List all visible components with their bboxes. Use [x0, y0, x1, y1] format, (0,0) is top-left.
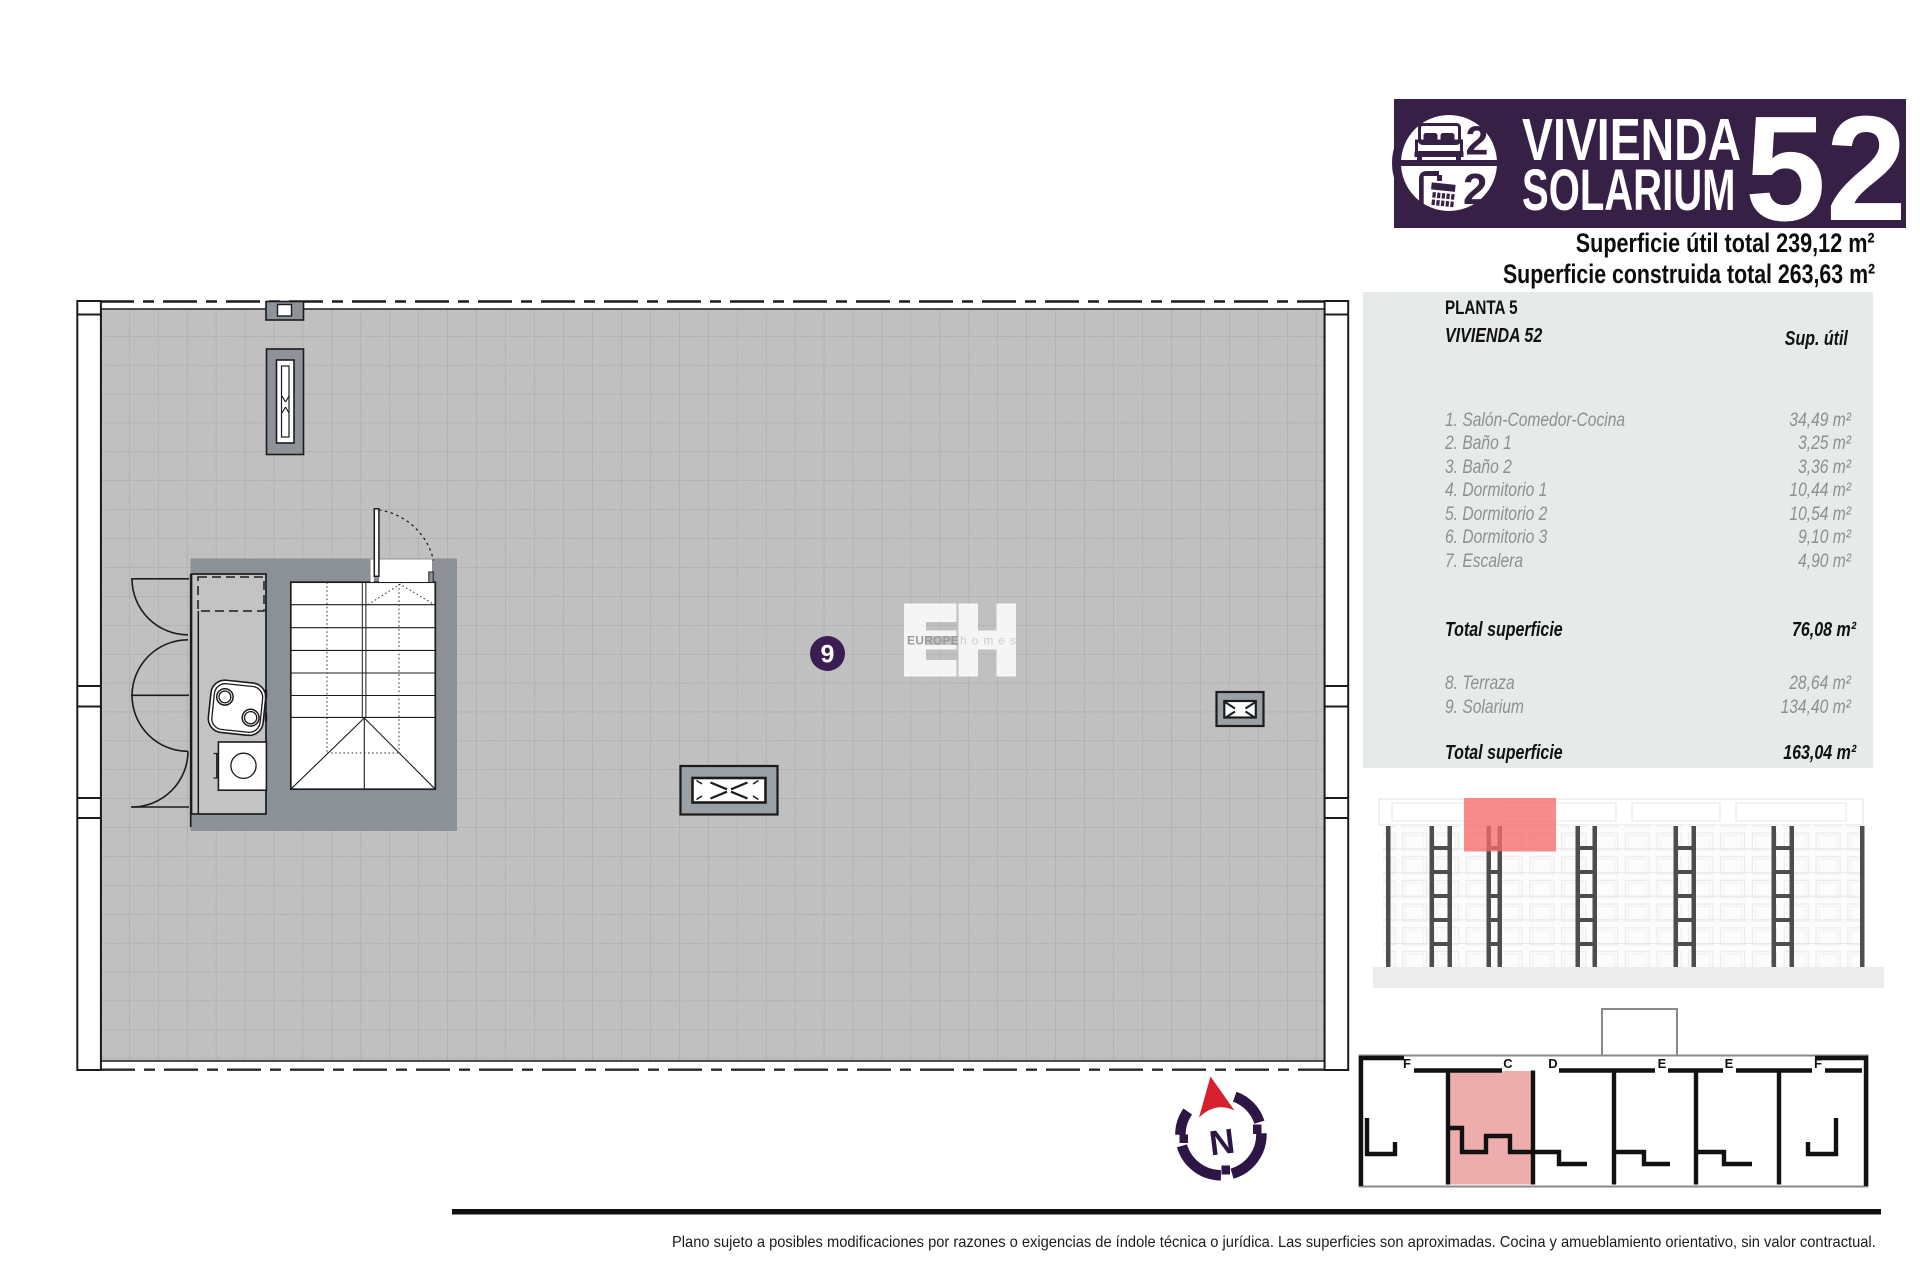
svg-text:F: F [1814, 1056, 1822, 1071]
svg-text:D: D [1548, 1056, 1557, 1071]
svg-text:9: 9 [821, 641, 835, 669]
svg-text:2: 2 [1466, 118, 1489, 164]
svg-text:2: 2 [1463, 165, 1487, 214]
svg-text:C: C [1503, 1056, 1513, 1071]
svg-text:N: N [1207, 1122, 1237, 1164]
svg-text:E: E [1725, 1056, 1734, 1071]
svg-text:EUROPE: EUROPE [907, 634, 959, 648]
svg-text:homes: homes [960, 634, 1021, 648]
svg-text:F: F [1403, 1056, 1411, 1071]
svg-text:E: E [1658, 1056, 1667, 1071]
